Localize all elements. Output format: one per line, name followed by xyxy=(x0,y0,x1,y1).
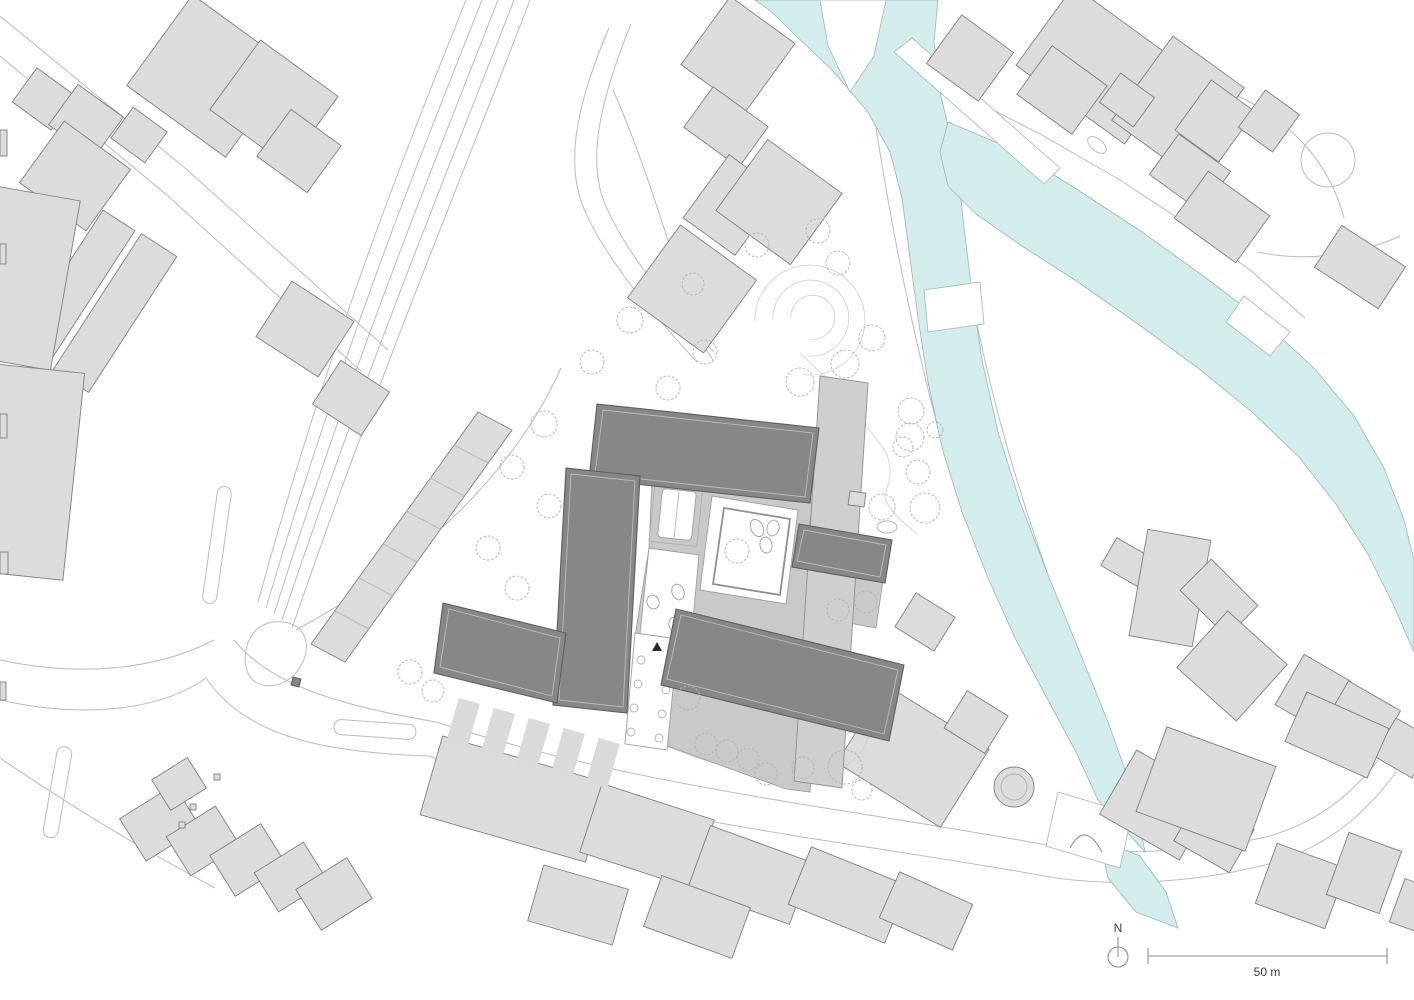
context-building xyxy=(0,552,8,574)
site-plan-page: N 50 m xyxy=(0,0,1414,1000)
tower xyxy=(994,767,1034,807)
garden-post xyxy=(214,774,220,780)
traffic-island xyxy=(1085,133,1110,156)
west-wing xyxy=(553,468,640,713)
context-building xyxy=(684,87,768,167)
west-extension-wing xyxy=(434,603,566,703)
context-building xyxy=(0,244,6,264)
context-building xyxy=(0,364,85,580)
median-island xyxy=(334,719,417,740)
context-building xyxy=(1315,225,1406,308)
street-edge xyxy=(0,678,206,710)
garden-post xyxy=(179,822,185,828)
site-plan-canvas: N 50 m xyxy=(0,0,1414,1000)
garden-post xyxy=(190,804,196,810)
kiosk xyxy=(291,677,301,687)
context-building xyxy=(0,130,7,156)
median-island xyxy=(42,745,73,838)
context-building xyxy=(0,414,7,438)
scale-label: 50 m xyxy=(1254,965,1281,979)
context-building xyxy=(1238,90,1299,152)
bar-annex xyxy=(848,491,866,507)
shrub xyxy=(877,521,897,533)
garden-spiral xyxy=(742,243,888,390)
bridge xyxy=(924,282,984,332)
context-building xyxy=(528,865,629,945)
street-edge xyxy=(0,640,214,669)
context-building xyxy=(1389,879,1414,936)
roundabout xyxy=(1301,133,1355,187)
north-indicator: N xyxy=(1108,921,1128,967)
scale-bar: 50 m xyxy=(1148,948,1387,979)
context-building xyxy=(420,736,608,862)
traffic-island-teardrop xyxy=(245,622,306,686)
context-building xyxy=(895,593,955,651)
median-island xyxy=(202,486,232,605)
context-building xyxy=(1326,832,1401,913)
north-label: N xyxy=(1114,921,1123,935)
context-building xyxy=(0,682,6,700)
